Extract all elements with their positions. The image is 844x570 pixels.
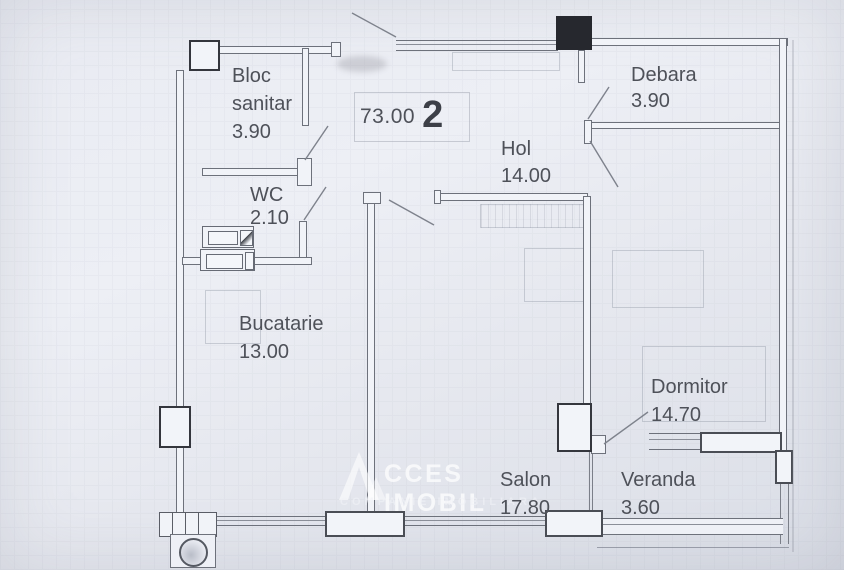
wall-right [779, 38, 787, 454]
room-count-value: 2 [422, 96, 443, 134]
door-swing-dormitor [590, 141, 618, 187]
door-swing-debara [588, 87, 609, 119]
wall-cap [363, 192, 381, 204]
door-swing-bloc-sanitar [305, 126, 328, 160]
pillar-mid-left [159, 406, 191, 448]
wall-bucatarie-salon [367, 196, 375, 520]
pillar-top-left [189, 40, 220, 71]
wall-stub-debara [578, 50, 585, 83]
photo-smudge [337, 56, 387, 72]
wall-bloc-sanitar-right [302, 48, 309, 126]
wall-top-right [590, 38, 788, 46]
faint-furniture [612, 250, 704, 308]
room-area: 13.00 [239, 338, 324, 366]
room-name: Debara [631, 62, 697, 88]
window-veranda-top [649, 433, 701, 450]
wall-pier-veranda-top [700, 432, 782, 453]
wall-left [176, 70, 184, 518]
wc-sink [202, 226, 254, 248]
room-name: Bucatarie [239, 310, 324, 338]
faint-wardrobe [480, 204, 586, 228]
door-jamb [591, 435, 606, 454]
floorplan-photo: CCES IMOBIL COMPANIE IMOBILIARA Bloc san… [0, 0, 844, 570]
wall-cap [434, 190, 441, 204]
room-name: Veranda [621, 466, 696, 494]
window-top [396, 40, 558, 51]
room-area: 2.10 [250, 207, 289, 230]
total-area-value: 73.00 [360, 105, 415, 129]
room-label-veranda: Veranda 3.60 [621, 466, 696, 522]
room-area: 17.80 [500, 494, 551, 522]
door-jamb [331, 42, 341, 57]
room-area: 3.90 [232, 118, 292, 146]
room-area: 3.90 [631, 88, 697, 114]
room-label-salon: Salon 17.80 [500, 466, 551, 522]
faint-furniture [524, 248, 584, 302]
wall-debara-bottom [590, 122, 780, 129]
room-area: 3.60 [621, 494, 696, 522]
pillar-solid [556, 16, 592, 50]
wall-salon-dormitor [583, 196, 591, 408]
room-name: sanitar [232, 90, 292, 118]
wall-block-bottom-right [545, 510, 603, 537]
wall-bloc-sanitar-bottom [202, 168, 306, 176]
wall-salon-top [436, 193, 588, 201]
wc-washer [200, 249, 255, 271]
brand-logo-a-icon [338, 450, 388, 502]
room-name: WC [250, 184, 289, 207]
room-name: Dormitor [651, 373, 728, 401]
wall-top-left [208, 46, 334, 54]
round-column-symbol [170, 534, 216, 568]
door-swing-entrance [352, 13, 396, 37]
room-label-bucatarie: Bucatarie 13.00 [239, 310, 324, 366]
room-label-hol: Hol 14.00 [501, 136, 551, 190]
door-swing-wc [304, 187, 326, 220]
door-swing-lines [0, 0, 844, 570]
door-swing-salon [389, 200, 434, 225]
room-label-wc: WC 2.10 [250, 184, 289, 230]
room-label-dormitor: Dormitor 14.70 [651, 373, 728, 429]
wall-pier-right [775, 450, 793, 484]
window-bottom-1 [216, 516, 326, 526]
outer-line-veranda [597, 540, 789, 548]
pillar-salon-veranda [557, 403, 592, 452]
room-area: 14.00 [501, 163, 551, 190]
wall-cap [297, 158, 312, 186]
room-name: Hol [501, 136, 551, 163]
wall-cap [584, 120, 592, 144]
wall-pier-bottom [325, 511, 405, 537]
total-area-label: 73.00 2 [360, 96, 443, 134]
faint-furniture [452, 52, 560, 71]
room-area: 14.70 [651, 401, 728, 429]
room-label-bloc-sanitar: Bloc sanitar 3.90 [232, 62, 292, 146]
room-label-debara: Debara 3.90 [631, 62, 697, 114]
room-name: Bloc [232, 62, 292, 90]
room-name: Salon [500, 466, 551, 494]
